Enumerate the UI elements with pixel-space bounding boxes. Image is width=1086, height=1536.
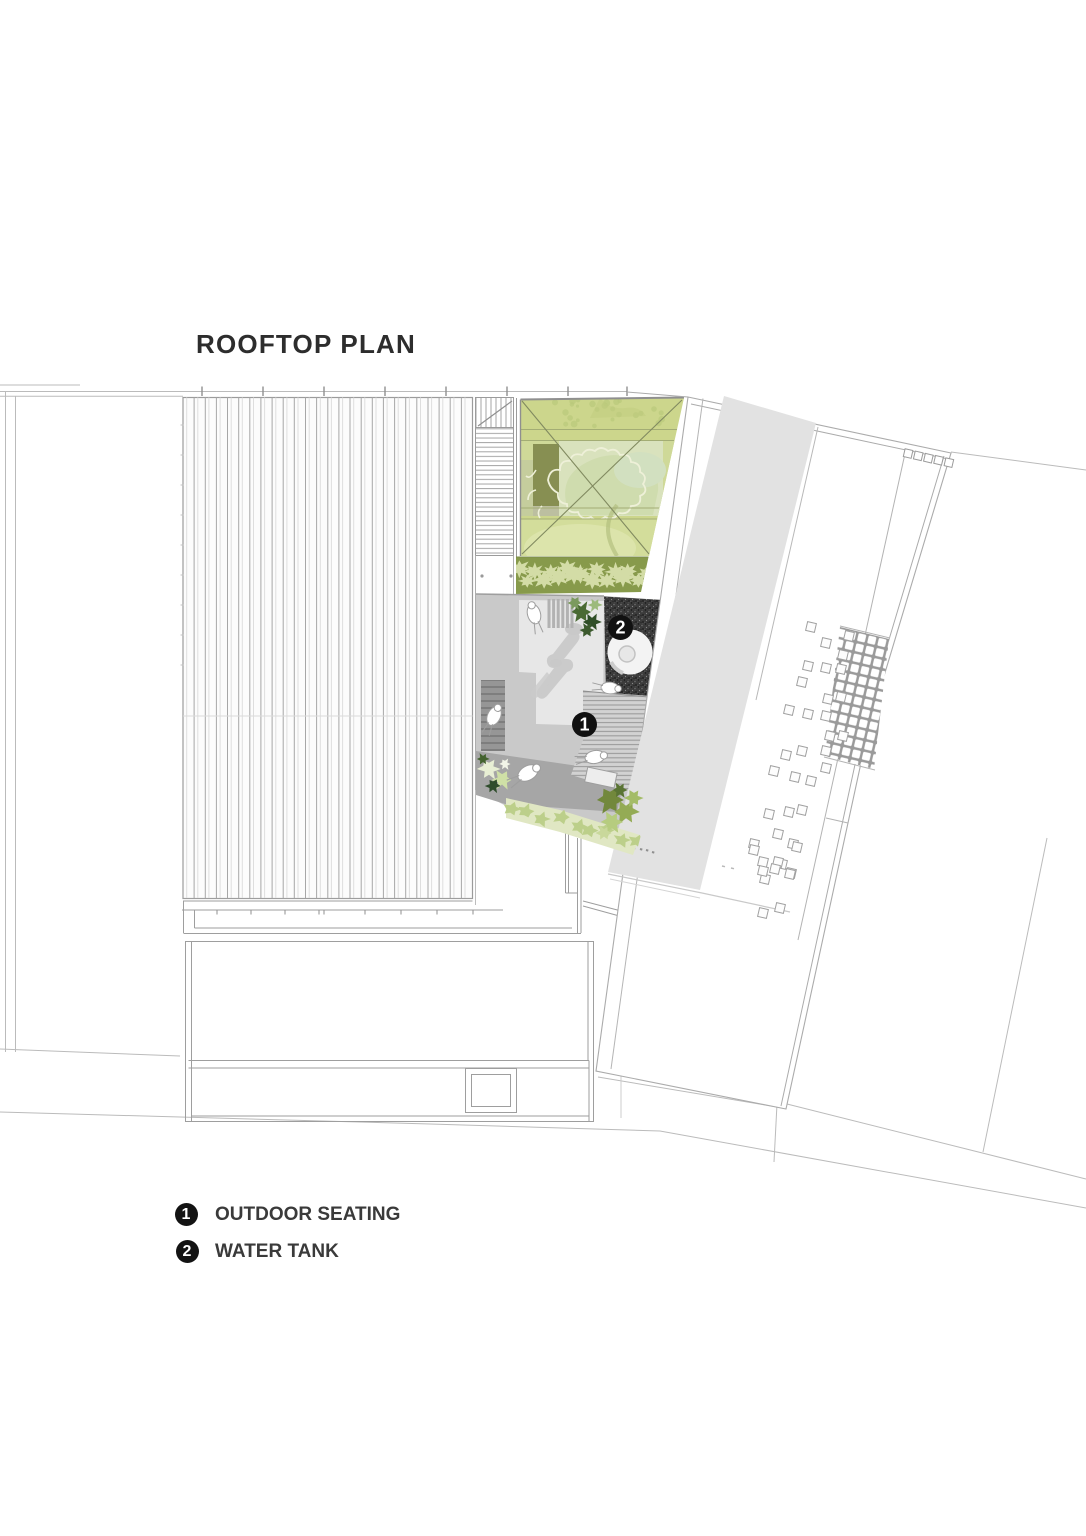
svg-text:2: 2 [615, 618, 625, 638]
svg-text:1: 1 [579, 715, 589, 735]
